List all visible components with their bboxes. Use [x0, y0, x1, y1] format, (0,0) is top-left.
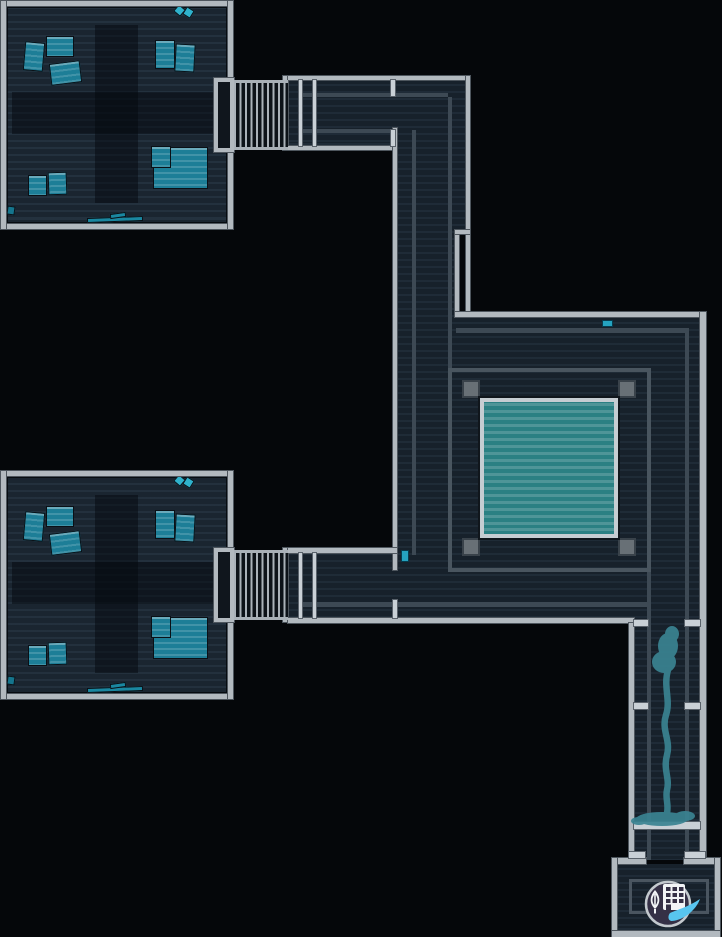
wall — [1, 1, 6, 229]
pickup-item-hall[interactable] — [602, 320, 613, 327]
game-map — [0, 0, 722, 937]
wall — [393, 128, 397, 570]
corridor-inner-outline — [300, 602, 649, 607]
room-top-dark-cross-horizontal — [12, 92, 222, 134]
desk — [48, 642, 68, 666]
airlock-bottom-frame — [214, 548, 234, 622]
wall — [455, 312, 706, 317]
desk — [174, 43, 195, 72]
objective-icon[interactable] — [643, 876, 703, 932]
objective-icon-graphic — [643, 876, 703, 932]
wall — [455, 232, 459, 315]
door-divider[interactable] — [299, 553, 302, 618]
desk — [28, 645, 47, 666]
pillar — [462, 538, 480, 556]
pickup-item-junction[interactable] — [401, 550, 409, 562]
wall — [1, 694, 233, 699]
desk — [46, 36, 74, 57]
desk — [151, 616, 171, 638]
desk — [49, 60, 82, 86]
pool — [480, 398, 618, 538]
door-divider[interactable] — [629, 852, 645, 858]
desk — [23, 41, 45, 72]
desk — [155, 40, 175, 69]
desk — [151, 146, 171, 168]
door-divider[interactable] — [313, 553, 316, 618]
desk — [28, 175, 47, 196]
desk — [174, 513, 195, 542]
airlock-top-bars[interactable] — [234, 80, 288, 150]
desk — [23, 511, 45, 542]
wall — [288, 146, 393, 150]
wall — [612, 858, 646, 864]
wall — [1, 471, 6, 699]
desk — [49, 530, 82, 556]
wall — [612, 858, 617, 937]
desk — [48, 172, 68, 196]
room-bottom-dark-cross-horizontal — [12, 562, 222, 604]
slime-trail — [622, 612, 710, 848]
corridor-inner-outline — [300, 93, 448, 97]
corridor-inner-outline — [456, 328, 685, 333]
door-divider[interactable] — [391, 130, 395, 146]
corridor-inner-outline — [412, 130, 416, 555]
wall — [715, 858, 720, 937]
door-divider[interactable] — [393, 600, 397, 618]
floor-object — [6, 675, 15, 685]
door-divider[interactable] — [391, 80, 395, 96]
pillar — [462, 380, 480, 398]
pillar — [618, 380, 636, 398]
slime-trail-graphic — [622, 612, 710, 848]
wall — [288, 618, 634, 623]
door-divider[interactable] — [299, 80, 302, 146]
wall — [1, 224, 233, 229]
desk — [46, 506, 74, 527]
desk — [155, 510, 175, 539]
wall — [1, 471, 233, 476]
airlock-top-frame — [214, 78, 234, 152]
wall — [466, 76, 470, 315]
wall — [1, 1, 233, 6]
wall — [455, 230, 470, 234]
airlock-bottom-bars[interactable] — [234, 550, 288, 620]
building-icon — [663, 884, 685, 910]
wall — [288, 548, 397, 553]
door-divider[interactable] — [313, 80, 316, 146]
pillar — [618, 538, 636, 556]
door-divider[interactable] — [685, 852, 705, 858]
wall-gap — [459, 234, 466, 314]
floor-object — [6, 205, 15, 215]
